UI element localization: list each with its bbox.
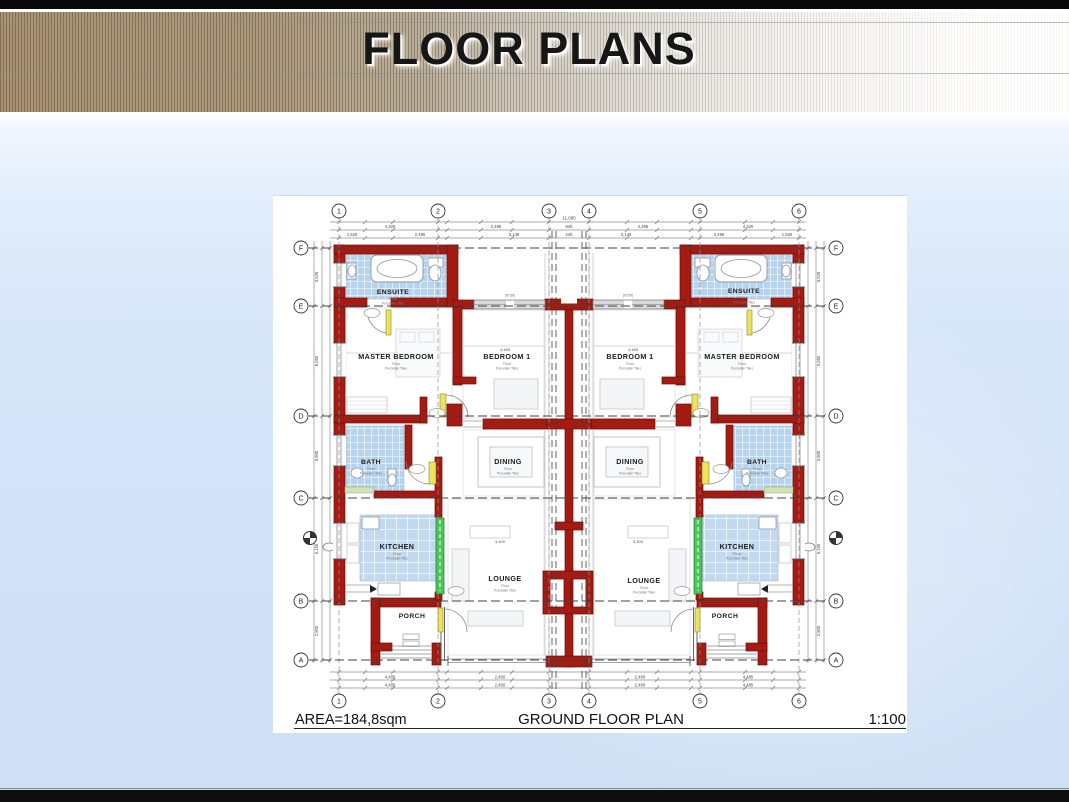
- svg-text:A: A: [299, 658, 304, 665]
- svg-text:BEDROOM 1: BEDROOM 1: [483, 352, 530, 361]
- svg-text:2,495: 2,495: [714, 232, 725, 237]
- svg-text:3,900: 3,900: [816, 450, 821, 461]
- svg-text:2: 2: [436, 699, 440, 706]
- svg-text:DINING: DINING: [494, 457, 522, 466]
- svg-text:2,400: 2,400: [635, 675, 646, 680]
- svg-text:D: D: [298, 414, 303, 421]
- svg-text:5: 5: [698, 699, 702, 706]
- svg-text:1: 1: [337, 699, 341, 706]
- svg-text:Porcelain Tiles: Porcelain Tiles: [633, 591, 655, 595]
- svg-text:3,400: 3,400: [495, 539, 506, 544]
- svg-text:2,495: 2,495: [415, 232, 426, 237]
- svg-text:Porcelain Tiles: Porcelain Tiles: [496, 367, 518, 371]
- svg-text:Floor: Floor: [626, 362, 635, 366]
- svg-text:4,485: 4,485: [385, 683, 396, 688]
- svg-text:Porcelain Tiles: Porcelain Tiles: [619, 472, 641, 476]
- svg-text:3,900: 3,900: [314, 450, 319, 461]
- svg-text:5,050: 5,050: [314, 355, 319, 366]
- svg-text:1: 1: [337, 209, 341, 216]
- svg-text:5: 5: [698, 209, 702, 216]
- svg-text:LOUNGE: LOUNGE: [488, 574, 521, 583]
- svg-text:Floor: Floor: [367, 467, 376, 471]
- svg-text:AREA=184,8sqm: AREA=184,8sqm: [295, 712, 407, 728]
- svg-text:Floor: Floor: [393, 552, 402, 556]
- svg-text:BEDROOM 1: BEDROOM 1: [606, 352, 653, 361]
- svg-text:3,140: 3,140: [509, 232, 520, 237]
- svg-text:3: 3: [547, 699, 551, 706]
- svg-text:4,320: 4,320: [385, 224, 396, 229]
- svg-text:Floor: Floor: [738, 362, 747, 366]
- svg-text:LOUNGE: LOUNGE: [627, 576, 660, 585]
- svg-text:2,400: 2,400: [495, 675, 506, 680]
- svg-text:PORCH: PORCH: [712, 613, 739, 620]
- svg-text:1,520: 1,520: [347, 232, 358, 237]
- svg-text:Floor: Floor: [392, 362, 401, 366]
- svg-text:4,485: 4,485: [385, 675, 396, 680]
- svg-text:Porcelain Tiles: Porcelain Tiles: [494, 589, 516, 593]
- svg-text:3,400: 3,400: [633, 539, 644, 544]
- svg-text:DINING: DINING: [616, 457, 644, 466]
- svg-text:5,050: 5,050: [816, 355, 821, 366]
- svg-text:BATH: BATH: [361, 459, 381, 466]
- svg-text:D: D: [833, 414, 838, 421]
- svg-text:6: 6: [797, 699, 801, 706]
- svg-text:4: 4: [587, 699, 591, 706]
- svg-text:Floor: Floor: [740, 296, 749, 300]
- svg-text:Floor: Floor: [626, 467, 635, 471]
- svg-text:C: C: [298, 496, 303, 503]
- svg-text:5,150: 5,150: [816, 543, 821, 554]
- svg-text:E: E: [834, 304, 839, 311]
- svg-text:2,900: 2,900: [314, 625, 319, 636]
- svg-text:KITCHEN: KITCHEN: [380, 542, 415, 551]
- svg-text:Porcelain Tiles: Porcelain Tiles: [746, 472, 768, 476]
- svg-text:1:100: 1:100: [868, 711, 906, 728]
- svg-text:2,400: 2,400: [495, 683, 506, 688]
- svg-text:Floor: Floor: [501, 584, 510, 588]
- svg-text:MASTER BEDROOM: MASTER BEDROOM: [358, 352, 433, 361]
- svg-text:4: 4: [587, 209, 591, 216]
- svg-text:B: B: [834, 599, 839, 606]
- svg-text:Porcelain Tiles: Porcelain Tiles: [731, 367, 753, 371]
- svg-text:240: 240: [566, 232, 574, 237]
- svg-text:3,525: 3,525: [314, 271, 319, 282]
- svg-text:E: E: [299, 304, 304, 311]
- svg-text:6: 6: [797, 209, 801, 216]
- svg-text:2: 2: [436, 209, 440, 216]
- svg-text:2,495: 2,495: [491, 224, 502, 229]
- svg-text:ENSUITE: ENSUITE: [728, 288, 760, 295]
- svg-text:Floor: Floor: [503, 362, 512, 366]
- svg-text:Floor: Floor: [640, 586, 649, 590]
- svg-text:F: F: [299, 246, 303, 253]
- svg-text:940: 940: [566, 224, 574, 229]
- svg-text:3: 3: [547, 209, 551, 216]
- svg-text:A: A: [834, 658, 839, 665]
- svg-text:Porcelain Tiles: Porcelain Tiles: [726, 557, 748, 561]
- svg-text:C: C: [833, 496, 838, 503]
- svg-text:5,150: 5,150: [314, 543, 319, 554]
- svg-text:B: B: [299, 599, 304, 606]
- svg-text:Floor: Floor: [504, 467, 513, 471]
- svg-text:Porcelain Tiles: Porcelain Tiles: [382, 302, 404, 306]
- svg-text:11,095: 11,095: [562, 216, 576, 221]
- svg-text:BATH: BATH: [747, 459, 767, 466]
- svg-text:Floor: Floor: [733, 552, 742, 556]
- svg-text:3,140: 3,140: [621, 232, 632, 237]
- svg-text:4,320: 4,320: [743, 224, 754, 229]
- svg-text:Porcelain Tiles: Porcelain Tiles: [619, 367, 641, 371]
- svg-text:4,485: 4,485: [743, 683, 754, 688]
- svg-text:KITCHEN: KITCHEN: [720, 542, 755, 551]
- svg-text:(0730): (0730): [623, 294, 633, 298]
- svg-text:(0730): (0730): [505, 294, 515, 298]
- svg-text:2,400: 2,400: [635, 683, 646, 688]
- svg-text:Porcelain Tiles: Porcelain Tiles: [385, 367, 407, 371]
- svg-text:2,900: 2,900: [816, 625, 821, 636]
- svg-text:Porcelain Tiles: Porcelain Tiles: [733, 301, 755, 305]
- svg-text:GROUND FLOOR PLAN: GROUND FLOOR PLAN: [518, 711, 684, 728]
- svg-text:F: F: [834, 246, 838, 253]
- svg-text:MASTER BEDROOM: MASTER BEDROOM: [704, 352, 779, 361]
- svg-text:Porcelain Tiles: Porcelain Tiles: [386, 557, 408, 561]
- svg-text:3,525: 3,525: [816, 271, 821, 282]
- svg-text:4,485: 4,485: [743, 675, 754, 680]
- svg-text:ENSUITE: ENSUITE: [377, 289, 409, 296]
- svg-text:Porcelain Tiles: Porcelain Tiles: [360, 472, 382, 476]
- svg-text:Floor: Floor: [753, 467, 762, 471]
- svg-text:PORCH: PORCH: [399, 613, 426, 620]
- svg-text:2,495: 2,495: [638, 224, 649, 229]
- svg-text:Porcelain Tiles: Porcelain Tiles: [497, 472, 519, 476]
- svg-text:Floor: Floor: [389, 297, 398, 301]
- svg-text:1,520: 1,520: [782, 232, 793, 237]
